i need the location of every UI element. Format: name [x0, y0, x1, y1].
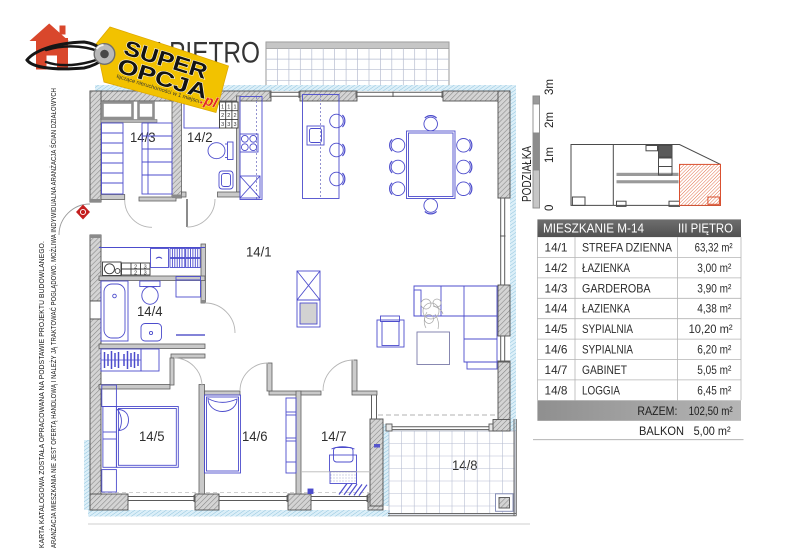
- svg-text:3m: 3m: [544, 79, 556, 95]
- svg-text:14/7: 14/7: [545, 363, 568, 377]
- svg-text:14/5: 14/5: [545, 322, 568, 336]
- svg-text:ARANŻACJA MIESZKANIA NIE JEST: ARANŻACJA MIESZKANIA NIE JEST OFERTĄ HAN…: [49, 88, 58, 548]
- svg-text:6,20 m²: 6,20 m²: [697, 343, 731, 357]
- svg-text:3: 3: [221, 122, 224, 128]
- svg-text:10,20 m²: 10,20 m²: [689, 322, 733, 336]
- svg-text:ŁAZIENKA: ŁAZIENKA: [582, 261, 630, 275]
- svg-text:3: 3: [144, 264, 147, 270]
- svg-text:14/3: 14/3: [545, 281, 568, 295]
- svg-text:5,00 m²: 5,00 m²: [694, 424, 731, 438]
- svg-text:III PIĘTRO: III PIĘTRO: [678, 222, 733, 236]
- svg-text:ŁAZIENKA: ŁAZIENKA: [582, 302, 630, 316]
- svg-text:KARTA KATALOGOWA ZOSTAŁA OPRAC: KARTA KATALOGOWA ZOSTAŁA OPRACOWANA NA P…: [37, 241, 46, 548]
- svg-text:14/4: 14/4: [137, 304, 163, 319]
- svg-text:63,32 m²: 63,32 m²: [695, 241, 733, 255]
- svg-text:RAZEM:: RAZEM:: [637, 404, 677, 418]
- svg-text:0: 0: [544, 205, 556, 211]
- svg-text:2: 2: [227, 113, 230, 119]
- svg-text:14/8: 14/8: [545, 383, 568, 397]
- svg-text:SYPIALNIA: SYPIALNIA: [582, 343, 633, 357]
- svg-text:SYPIALNIA: SYPIALNIA: [582, 322, 633, 336]
- svg-text:14/3: 14/3: [130, 130, 156, 145]
- svg-text:LOGGIA: LOGGIA: [582, 383, 620, 397]
- svg-text:2: 2: [221, 113, 224, 119]
- svg-text:1: 1: [227, 105, 230, 111]
- svg-text:MIESZKANIE M-14: MIESZKANIE M-14: [543, 222, 644, 236]
- svg-text:2: 2: [134, 264, 137, 270]
- svg-text:2: 2: [134, 271, 137, 277]
- svg-text:14/4: 14/4: [545, 302, 568, 316]
- svg-text:14/1: 14/1: [545, 241, 568, 255]
- svg-text:2m: 2m: [544, 112, 556, 128]
- svg-text:1m: 1m: [544, 147, 556, 163]
- svg-text:14/6: 14/6: [545, 343, 568, 357]
- svg-text:4,38 m²: 4,38 m²: [697, 302, 731, 316]
- svg-text:PODZIAŁKA: PODZIAŁKA: [519, 146, 534, 202]
- svg-text:3: 3: [227, 122, 230, 128]
- svg-text:14/5: 14/5: [139, 429, 165, 444]
- svg-text:GABINET: GABINET: [582, 363, 627, 377]
- svg-text:14/1: 14/1: [246, 245, 272, 260]
- svg-text:14/6: 14/6: [242, 429, 268, 444]
- svg-text:GARDEROBA: GARDEROBA: [582, 281, 651, 295]
- svg-text:5,05 m²: 5,05 m²: [697, 363, 731, 377]
- svg-text:1: 1: [221, 105, 224, 111]
- svg-text:BALKON: BALKON: [639, 424, 684, 438]
- svg-text:6,45 m²: 6,45 m²: [697, 383, 731, 397]
- svg-text:14/2: 14/2: [545, 261, 568, 275]
- svg-text:3,00 m²: 3,00 m²: [697, 261, 731, 275]
- svg-text:3,90 m²: 3,90 m²: [697, 281, 731, 295]
- svg-text:102,50 m²: 102,50 m²: [689, 404, 733, 418]
- svg-text:1: 1: [233, 105, 236, 111]
- svg-text:14/2: 14/2: [187, 130, 213, 145]
- svg-text:3: 3: [144, 271, 147, 277]
- svg-text:2: 2: [233, 113, 236, 119]
- svg-text:14/7: 14/7: [321, 429, 347, 444]
- svg-text:3: 3: [233, 122, 236, 128]
- svg-text:STREFA DZIENNA: STREFA DZIENNA: [582, 241, 672, 255]
